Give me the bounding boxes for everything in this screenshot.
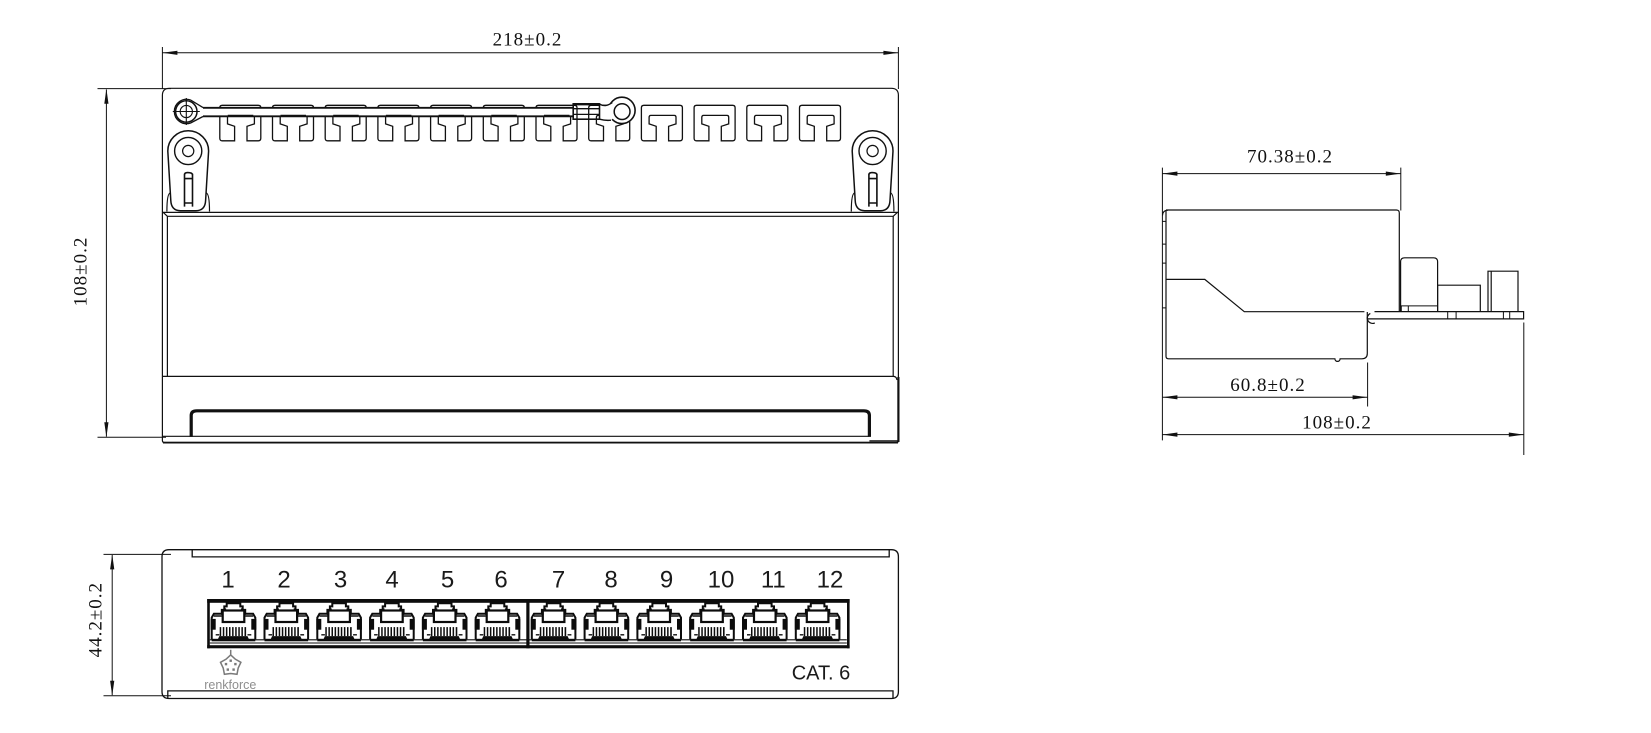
svg-text:44.2±0.2: 44.2±0.2 — [86, 582, 107, 657]
svg-text:8: 8 — [604, 566, 617, 593]
svg-text:9: 9 — [660, 566, 673, 593]
svg-text:5: 5 — [441, 566, 454, 593]
svg-text:3: 3 — [334, 566, 347, 593]
svg-text:CAT. 6: CAT. 6 — [792, 662, 851, 684]
svg-text:108±0.2: 108±0.2 — [1302, 413, 1372, 434]
svg-text:11: 11 — [761, 566, 786, 593]
svg-text:60.8±0.2: 60.8±0.2 — [1230, 375, 1305, 396]
svg-text:7: 7 — [552, 566, 565, 593]
svg-text:renkforce: renkforce — [204, 678, 256, 692]
svg-text:2: 2 — [277, 566, 290, 593]
svg-text:1: 1 — [221, 566, 234, 593]
svg-text:6: 6 — [494, 566, 507, 593]
svg-text:108±0.2: 108±0.2 — [71, 237, 92, 307]
svg-text:218±0.2: 218±0.2 — [493, 29, 563, 50]
svg-text:70.38±0.2: 70.38±0.2 — [1247, 147, 1333, 168]
svg-text:10: 10 — [708, 566, 735, 593]
svg-text:12: 12 — [817, 566, 844, 593]
svg-text:4: 4 — [385, 566, 398, 593]
